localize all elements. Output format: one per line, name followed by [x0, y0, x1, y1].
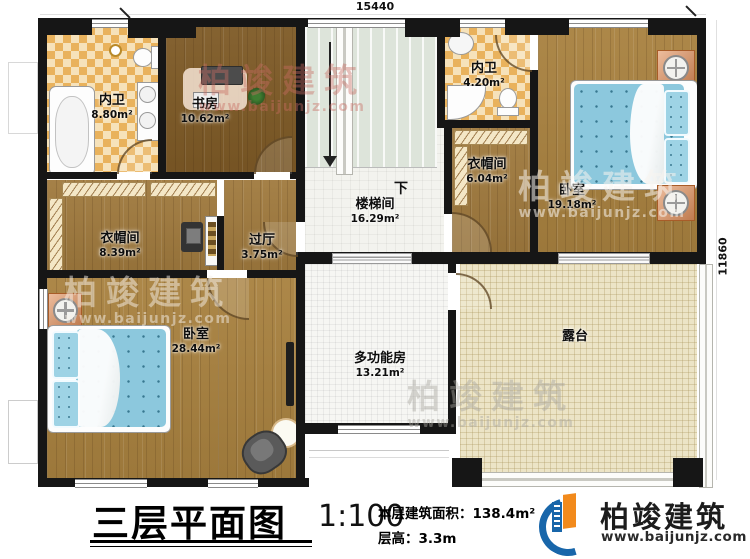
label-bath1: 内卫 8.80m²	[62, 94, 162, 121]
floor-height-text: 层高：3.3m	[378, 527, 456, 547]
window-multi-bottom	[338, 425, 420, 434]
wall-bedroom1-top-b	[247, 270, 305, 278]
wardrobe-closet1-top-right	[150, 182, 216, 197]
desk-monitor	[201, 66, 243, 85]
wall-right	[697, 18, 706, 264]
wall-bedroom1-multi	[296, 264, 305, 487]
wardrobe-closet2-top	[454, 130, 528, 145]
wall-bath1-bottom-a	[42, 172, 117, 179]
room-area: 19.18m²	[522, 199, 622, 211]
room-name: 书房	[155, 98, 255, 113]
floor-area-text: 本层建筑面积：138.4m²	[378, 502, 535, 522]
wall-bath2-bottom	[445, 120, 530, 128]
label-multiroom: 多功能房 13.21m²	[330, 352, 430, 379]
room-name: 露台	[525, 330, 625, 345]
wall-study-bottom-a	[166, 172, 254, 179]
terrace-railing-right	[699, 264, 713, 488]
sliding-door-multiroom	[332, 253, 412, 264]
dimension-line-top	[40, 14, 706, 15]
room-area: 8.80m²	[62, 109, 162, 121]
room-name: 衣帽间	[70, 232, 170, 247]
room-name: 楼梯间	[325, 198, 425, 213]
ceiling-lamp-icon	[109, 44, 122, 57]
terrace-pillar-left	[452, 458, 482, 487]
room-name: 卧室	[522, 184, 622, 199]
dimension-top-label: 15440	[340, 0, 410, 13]
window-bottom-2	[208, 479, 258, 488]
plan-title: 三层平面图	[92, 493, 287, 547]
wall-pier-3	[405, 18, 460, 37]
lamp-br1-top	[53, 298, 78, 323]
wall-study-stairs	[296, 27, 305, 222]
room-area: 13.21m²	[330, 367, 430, 379]
wall-bath2-bedroom2-a	[530, 27, 538, 35]
room-name: 衣帽间	[437, 158, 537, 173]
room-name: 内卫	[62, 94, 162, 109]
floor-terrace	[460, 264, 697, 472]
label-bath2: 内卫 4.20m²	[434, 62, 534, 89]
window-top-1	[92, 19, 128, 28]
label-closet2: 衣帽间 6.04m²	[437, 158, 537, 185]
dimension-tick-left	[119, 7, 130, 18]
wall-bedroom1-top-a	[38, 270, 207, 278]
wall-multi-terrace-b	[448, 310, 456, 427]
wall-left	[38, 18, 47, 487]
floor-plan-canvas: 下	[0, 0, 750, 559]
room-name: 卧室	[146, 328, 246, 343]
room-area: 16.29m²	[325, 213, 425, 225]
lamp-br2-bottom	[663, 190, 689, 216]
wall-bath1-bottom-b	[150, 172, 166, 179]
window-top-2	[308, 19, 405, 28]
room-name: 过厅	[212, 234, 312, 249]
label-hall: 过厅 3.75m²	[212, 234, 312, 261]
lamp-br2-top	[663, 55, 689, 81]
logo-building-orange-icon	[563, 493, 576, 529]
terrace-railing-bottom	[460, 472, 702, 487]
room-name: 内卫	[434, 62, 534, 77]
stair-arrow-line	[329, 42, 331, 156]
tv-panel	[286, 342, 294, 406]
toilet-2	[499, 88, 517, 109]
toilet-2-tank	[497, 107, 519, 116]
brand-url: www.baijunjz.com	[601, 529, 747, 545]
brand-logo-icon	[537, 492, 595, 550]
stair-rail	[336, 27, 353, 175]
room-area: 8.39m²	[70, 247, 170, 259]
wall-multi-terrace-a	[448, 264, 456, 273]
bed-1-pillow-top	[52, 331, 80, 379]
exterior-platform-bottom-left	[8, 400, 38, 464]
logo-building-windows-icon	[554, 505, 560, 529]
window-top-3	[460, 19, 505, 28]
room-area: 28.44m²	[146, 343, 246, 355]
room-area: 4.20m²	[434, 77, 534, 89]
label-study: 书房 10.62m²	[155, 98, 255, 125]
appliance-washer-door	[186, 228, 201, 244]
room-area: 10.62m²	[155, 113, 255, 125]
title-underline-thick	[90, 540, 312, 543]
bed-2-pillow-bottom	[664, 138, 690, 184]
walkway-edge-line-1	[309, 450, 449, 451]
bed-1-pillow-bottom	[52, 380, 80, 428]
bed-2-duvet	[630, 84, 664, 184]
room-name: 多功能房	[330, 352, 430, 367]
window-left	[39, 289, 48, 329]
room-area: 6.04m²	[437, 173, 537, 185]
sliding-door-bedroom2-terrace	[558, 253, 650, 264]
bed-1-duvet	[78, 329, 120, 427]
dimension-right-label: 11860	[717, 234, 730, 280]
label-closet1: 衣帽间 8.39m²	[70, 232, 170, 259]
window-bottom-1	[75, 479, 147, 488]
wardrobe-closet1-top-left	[62, 182, 146, 197]
stair-direction-label: 下	[394, 178, 408, 198]
label-stairhall: 楼梯间 16.29m²	[325, 198, 425, 225]
bed-2-pillow-top	[664, 90, 690, 136]
room-area: 3.75m²	[212, 249, 312, 261]
exterior-ledge-top-left	[8, 62, 38, 134]
toilet-1	[133, 48, 153, 67]
window-top-4	[569, 19, 648, 28]
label-terrace: 露台	[525, 330, 625, 345]
wardrobe-closet1-left	[49, 198, 63, 278]
label-bedroom1: 卧室 28.44m²	[146, 328, 246, 355]
floor-multiroom	[305, 264, 448, 427]
terrace-pillar-right	[673, 458, 703, 487]
walkway-edge-line-2	[309, 457, 449, 458]
stair-treads	[305, 27, 437, 168]
title-underline-thin	[90, 546, 312, 547]
stair-arrow-head	[323, 156, 337, 174]
label-bedroom2: 卧室 19.18m²	[522, 184, 622, 211]
